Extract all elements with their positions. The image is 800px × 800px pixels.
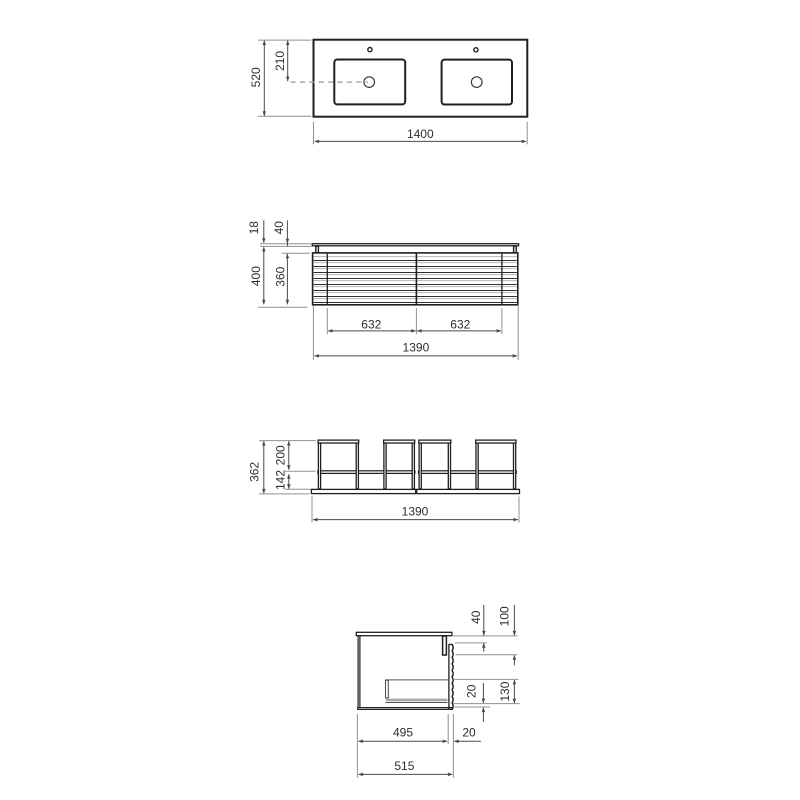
svg-text:400: 400: [249, 266, 263, 286]
svg-text:1400: 1400: [407, 127, 434, 141]
svg-text:210: 210: [273, 51, 287, 71]
svg-text:520: 520: [249, 67, 263, 87]
svg-text:515: 515: [394, 759, 414, 773]
svg-text:360: 360: [274, 266, 288, 286]
svg-text:18: 18: [247, 221, 261, 235]
svg-text:362: 362: [248, 462, 262, 482]
svg-text:200: 200: [273, 445, 287, 465]
svg-text:1390: 1390: [402, 504, 429, 518]
svg-text:20: 20: [465, 684, 479, 698]
svg-text:142: 142: [273, 470, 287, 490]
svg-text:40: 40: [469, 610, 483, 624]
svg-text:632: 632: [361, 318, 381, 332]
svg-text:100: 100: [497, 606, 511, 626]
svg-text:495: 495: [393, 726, 413, 740]
svg-text:130: 130: [498, 681, 512, 701]
svg-text:1390: 1390: [403, 341, 430, 355]
svg-text:632: 632: [450, 318, 470, 332]
svg-text:20: 20: [462, 726, 476, 740]
svg-text:40: 40: [272, 221, 286, 235]
